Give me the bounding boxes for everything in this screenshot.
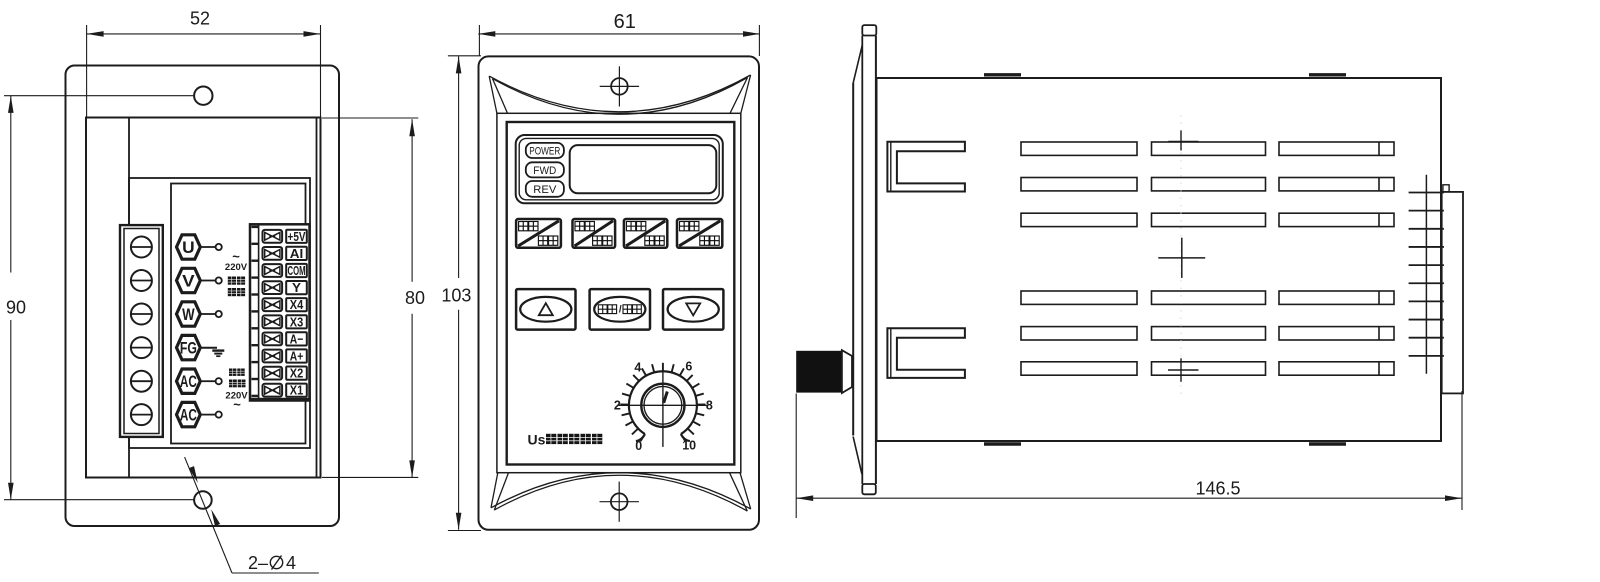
- svg-text:2: 2: [614, 399, 621, 413]
- svg-text:X2: X2: [290, 366, 304, 381]
- svg-text:220V: 220V: [225, 262, 248, 273]
- svg-text:AI: AI: [290, 246, 304, 261]
- svg-text:POWER: POWER: [529, 145, 560, 157]
- svg-text:Us: Us: [528, 432, 546, 448]
- svg-text:80: 80: [405, 288, 425, 308]
- svg-text:REV: REV: [533, 184, 557, 196]
- svg-text:A−: A−: [290, 331, 304, 346]
- svg-text:/: /: [619, 305, 622, 316]
- svg-text:0: 0: [635, 439, 642, 453]
- svg-text:4: 4: [634, 361, 641, 375]
- svg-text:+5V: +5V: [288, 229, 306, 244]
- svg-text:146.5: 146.5: [1195, 479, 1240, 499]
- svg-text:V: V: [182, 272, 195, 291]
- svg-text:90: 90: [6, 298, 26, 318]
- svg-text:AC: AC: [180, 406, 197, 425]
- svg-text:X3: X3: [290, 314, 304, 329]
- svg-text:COM: COM: [288, 263, 306, 278]
- svg-text:10: 10: [682, 439, 696, 453]
- svg-text:2–: 2–: [248, 553, 268, 573]
- svg-text:X1: X1: [290, 383, 304, 398]
- svg-text:FWD: FWD: [533, 165, 556, 177]
- svg-text:X4: X4: [290, 297, 304, 312]
- svg-text:103: 103: [441, 285, 471, 305]
- svg-text:W: W: [182, 305, 195, 324]
- svg-text:52: 52: [190, 9, 210, 29]
- svg-text:FG: FG: [180, 339, 197, 358]
- svg-text:AC: AC: [180, 372, 197, 391]
- svg-text:61: 61: [614, 11, 636, 33]
- svg-text:U: U: [182, 238, 195, 257]
- svg-text:6: 6: [685, 360, 692, 374]
- svg-text:Y: Y: [292, 280, 301, 295]
- svg-text:8: 8: [706, 399, 713, 413]
- svg-text:4: 4: [286, 553, 296, 573]
- svg-text:A+: A+: [290, 349, 304, 364]
- svg-text:~: ~: [233, 397, 241, 412]
